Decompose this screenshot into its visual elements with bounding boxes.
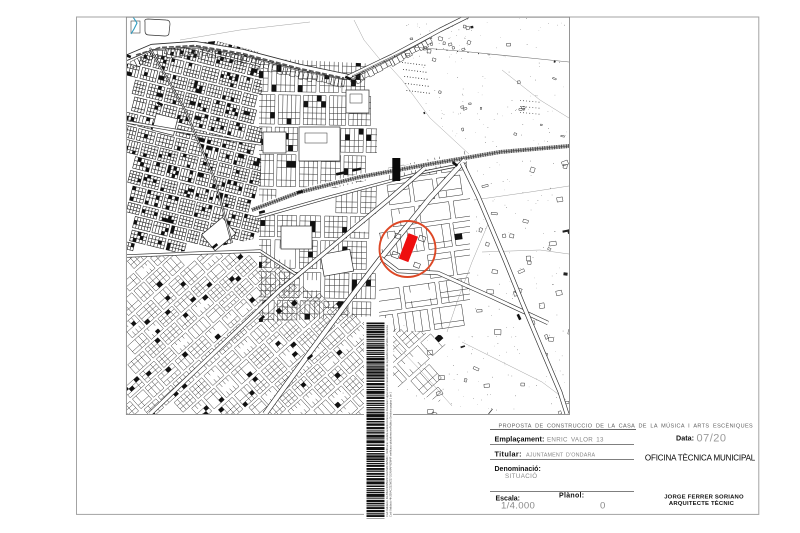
svg-text:Emplaçament:: Emplaçament: [495, 435, 545, 444]
svg-text:Data:: Data: [676, 433, 694, 442]
svg-text:ENRIC VALOR 13: ENRIC VALOR 13 [547, 436, 604, 443]
svg-text:Denominació:: Denominació: [495, 466, 541, 473]
svg-text:0: 0 [600, 501, 605, 512]
svg-text:PROPOSTA DE CONSTRUCCIO DE LA: PROPOSTA DE CONSTRUCCIO DE LA CASA DE LA… [499, 423, 754, 430]
svg-text:07/20: 07/20 [697, 433, 727, 445]
svg-text:ARQUITECTE TÈCNIC: ARQUITECTE TÈCNIC [669, 499, 735, 507]
svg-text:SITUACIÓ: SITUACIÓ [505, 473, 537, 480]
svg-text:Codi Validacio: 4HJ59ACZ2ZWZ27: Codi Validacio: 4HJ59ACZ2ZWZ27GGNMAFM2W4… [385, 325, 389, 517]
svg-text:Plànol:: Plànol: [559, 493, 584, 500]
svg-text:Codi Validacio 4HJ59ACZ2ZWZ27G: Codi Validacio 4HJ59ACZ2ZWZ27GGNMAFM2W4F… [389, 392, 393, 517]
svg-text:Titular:: Titular: [495, 450, 522, 459]
svg-text:1/4.000: 1/4.000 [501, 501, 535, 512]
svg-text:OFICINA TÈCNICA MUNICIPAL: OFICINA TÈCNICA MUNICIPAL [645, 454, 756, 463]
svg-text:AJUNTAMENT D’ONDARA: AJUNTAMENT D’ONDARA [526, 453, 595, 459]
svg-text:JORGE FERRER SORIANO: JORGE FERRER SORIANO [664, 494, 744, 500]
